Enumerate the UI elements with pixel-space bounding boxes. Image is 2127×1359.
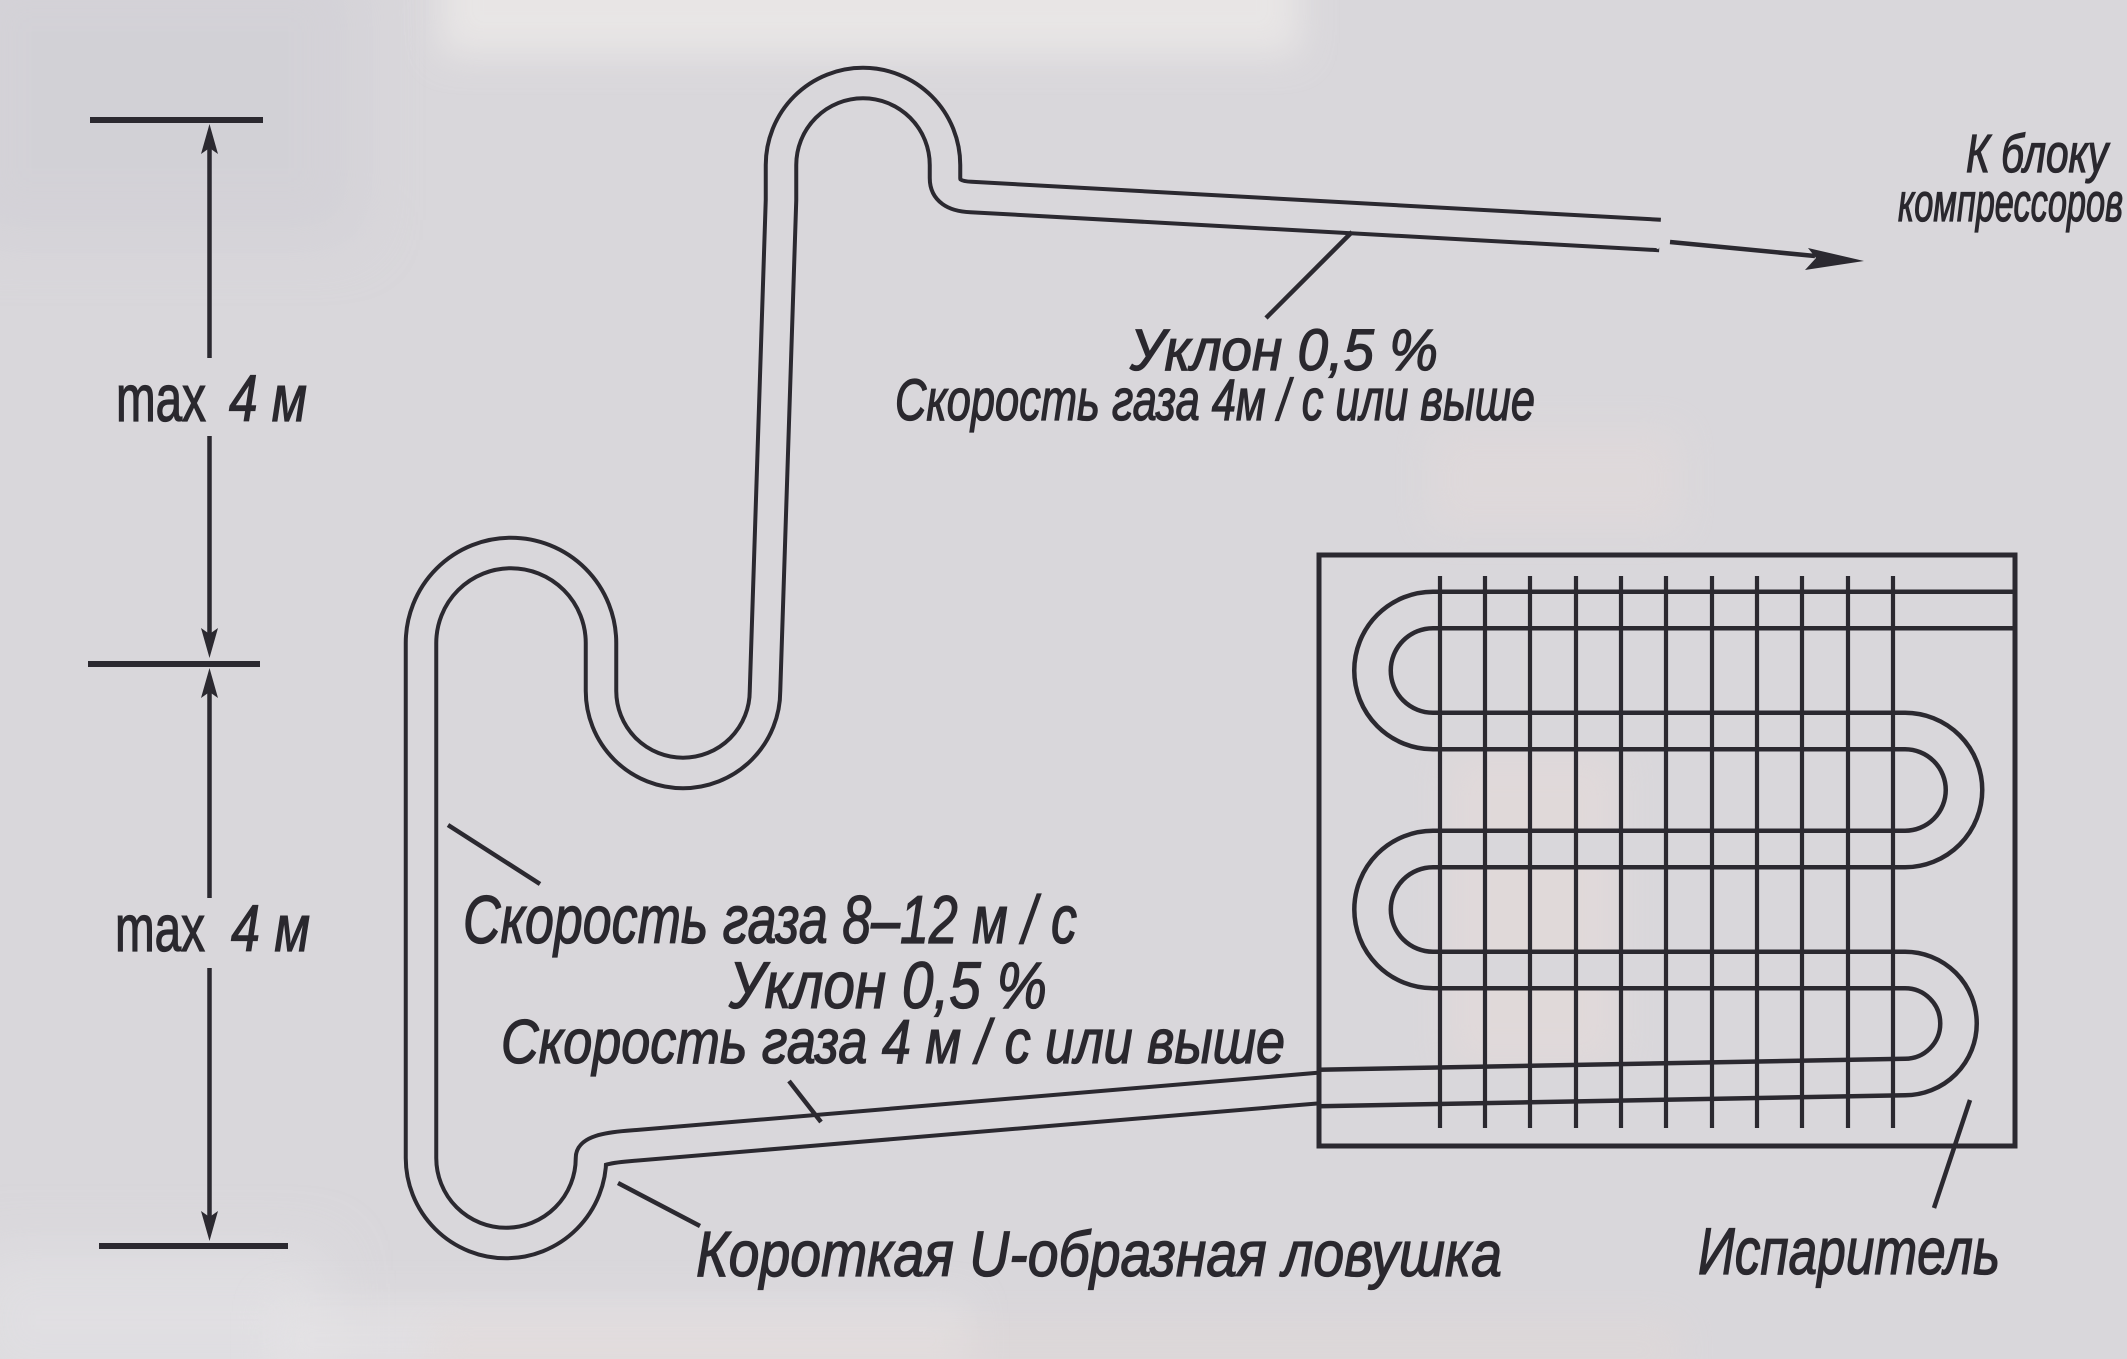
svg-text:Испаритель: Испаритель: [1698, 1214, 2000, 1288]
svg-text:компрессоров: компрессоров: [1898, 173, 2123, 233]
svg-text:max: max: [116, 361, 206, 435]
svg-text:Скорость газа 4 м / с или выше: Скорость газа 4 м / с или выше: [501, 1008, 1285, 1077]
svg-text:max: max: [115, 891, 205, 965]
svg-text:Скорость газа 8–12 м / с: Скорость газа 8–12 м / с: [463, 882, 1077, 958]
svg-text:Скорость газа 4м / с или выше: Скорость газа 4м / с или выше: [895, 368, 1535, 433]
svg-text:Короткая U-образная ловушка: Короткая U-образная ловушка: [696, 1218, 1502, 1290]
svg-text:4 м: 4 м: [231, 891, 310, 965]
svg-text:4 м: 4 м: [229, 361, 307, 435]
